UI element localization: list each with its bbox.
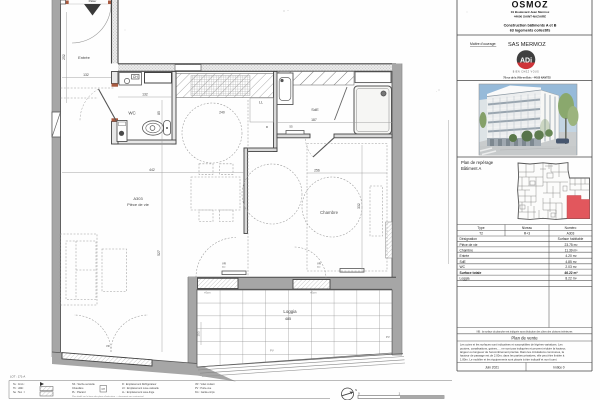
svg-text:SS : Sèche-serviette: SS : Sèche-serviette	[72, 383, 95, 386]
svg-text:SAS MERMOZ: SAS MERMOZ	[508, 42, 546, 48]
svg-text:527: 527	[157, 250, 161, 256]
svg-text:Juin 2021: Juin 2021	[485, 365, 499, 369]
svg-text:19 Boulevard Jean Mermoz: 19 Boulevard Jean Mermoz	[511, 10, 550, 14]
svg-text:11.39 m²: 11.39 m²	[565, 248, 579, 252]
svg-text:Plan de repérage: Plan de repérage	[461, 160, 494, 165]
svg-text:Type: Type	[477, 226, 484, 230]
svg-text:4.20 m²: 4.20 m²	[565, 254, 577, 258]
svg-text:LV : Emplacement Lave-vaissell: LV : Emplacement Lave-vaisselle	[122, 387, 159, 390]
svg-text:132: 132	[83, 73, 89, 77]
svg-text:R : Emplacement Réfrigérateur: R : Emplacement Réfrigérateur	[122, 383, 157, 386]
svg-text:Surface habitable: Surface habitable	[558, 237, 584, 241]
svg-text:Numéro: Numéro	[565, 226, 577, 230]
svg-text:46.22 m²: 46.22 m²	[564, 271, 578, 275]
svg-text:132: 132	[142, 92, 148, 96]
svg-text:Indice 0: Indice 0	[553, 365, 564, 369]
svg-text:CH: CH	[101, 388, 105, 391]
svg-text:VR : Volet roulant: VR : Volet roulant	[195, 383, 215, 386]
svg-text:Palier: Palier	[89, 0, 97, 3]
svg-text:78 rue de la Ville-en-Bois - 4: 78 rue de la Ville-en-Bois - 44100 NANTE…	[503, 76, 551, 79]
svg-text:LL: LL	[259, 101, 263, 105]
svg-text:Construction bâtiments A et B: Construction bâtiments A et B	[504, 24, 557, 28]
svg-text:44600 SAINT-NAZAIRE: 44600 SAINT-NAZAIRE	[514, 15, 546, 19]
svg-text:Niveau: Niveau	[522, 226, 532, 230]
svg-text:KG : Garde-corps: KG : Garde-corps	[195, 391, 215, 394]
svg-text:Tb : d3dt :: Tb : d3dt :	[13, 387, 25, 390]
svg-text:+0cm: +0cm	[310, 291, 316, 295]
svg-text:R+3: R+3	[524, 232, 530, 236]
svg-text:T2: T2	[479, 232, 483, 236]
svg-text:A303: A303	[567, 232, 575, 236]
svg-text:1.80m. Le mobilier et les équi: 1.80m. Le mobilier et les équipements so…	[460, 357, 558, 361]
svg-text:332: 332	[357, 203, 361, 209]
svg-text:Désignation: Désignation	[460, 237, 478, 241]
svg-text:VR: VR	[222, 262, 226, 266]
svg-text:2.03 m²: 2.03 m²	[565, 265, 577, 269]
svg-text:Plan établi sur la base des pl: Plan établi sur la base des plans d'exéc…	[72, 395, 144, 398]
svg-text:63 logements collectifs: 63 logements collectifs	[510, 29, 551, 33]
svg-text:55: 55	[289, 125, 293, 129]
svg-text:SdE: SdE	[311, 107, 319, 112]
svg-text:Pièce de vie: Pièce de vie	[127, 202, 150, 207]
svg-text:VR: VR	[106, 344, 110, 348]
svg-text:256: 256	[314, 168, 320, 172]
svg-text:tout: tout	[222, 266, 226, 269]
svg-text:CH: CH	[133, 75, 138, 79]
svg-text:A303: A303	[133, 196, 143, 201]
svg-text:Chambre: Chambre	[460, 248, 474, 252]
svg-text:485: 485	[285, 317, 291, 321]
svg-text:85: 85	[157, 111, 161, 115]
svg-text:tout: tout	[317, 266, 321, 269]
svg-text:WC: WC	[460, 265, 466, 269]
svg-text:Entrée: Entrée	[460, 254, 470, 258]
svg-text:WC: WC	[128, 111, 135, 116]
svg-text:+0cm: +0cm	[204, 291, 210, 295]
svg-text:4.85 m²: 4.85 m²	[565, 260, 577, 264]
svg-text:PL : Placard: PL : Placard	[72, 391, 86, 394]
svg-text:Se : 5uc : I: Se : 5uc : I	[13, 391, 25, 394]
svg-text:153: 153	[197, 331, 201, 336]
svg-text:Loggia: Loggia	[283, 309, 297, 314]
svg-text:Sv : 4m²s :: Sv : 4m²s :	[13, 383, 25, 386]
svg-text:240: 240	[219, 110, 225, 114]
svg-text:LL : Emplacement Lave-linge: LL : Emplacement Lave-linge	[122, 391, 155, 394]
svg-text:ADi: ADi	[520, 57, 532, 64]
svg-text:Chaudière: Chaudière	[72, 387, 84, 390]
svg-text:Bâtiment A: Bâtiment A	[461, 166, 481, 171]
svg-text:OSMOZ: OSMOZ	[512, 0, 549, 10]
svg-text:PV : Porte-vue: PV : Porte-vue	[195, 387, 212, 390]
svg-text:Plan de vente: Plan de vente	[511, 335, 538, 340]
svg-text:252: 252	[62, 54, 66, 60]
svg-text:NB : la surface du plancher es: NB : la surface du plancher est indiquée…	[477, 330, 573, 333]
svg-text:23.75 m²: 23.75 m²	[564, 243, 578, 247]
svg-text:BIEN CHEZ VOUS: BIEN CHEZ VOUS	[513, 71, 539, 73]
svg-text:VR: VR	[317, 262, 321, 266]
svg-text:Surface totale: Surface totale	[460, 271, 482, 275]
svg-text:Pièce de vie: Pièce de vie	[460, 243, 478, 247]
svg-text:187: 187	[311, 118, 317, 122]
svg-text:LOT : 171-A: LOT : 171-A	[10, 375, 25, 379]
svg-text:8.22 m²: 8.22 m²	[565, 277, 577, 281]
svg-text:SdE: SdE	[460, 260, 467, 264]
svg-text:N: N	[355, 388, 357, 392]
svg-text:442: 442	[149, 168, 155, 172]
svg-text:Chambre: Chambre	[320, 210, 339, 215]
svg-text:Maître d'ouvrage:: Maître d'ouvrage:	[470, 42, 496, 46]
svg-text:PV: PV	[386, 335, 390, 339]
svg-text:Loggia: Loggia	[460, 277, 470, 281]
svg-text:PV: PV	[270, 349, 274, 353]
svg-text:Entrée: Entrée	[78, 55, 91, 60]
